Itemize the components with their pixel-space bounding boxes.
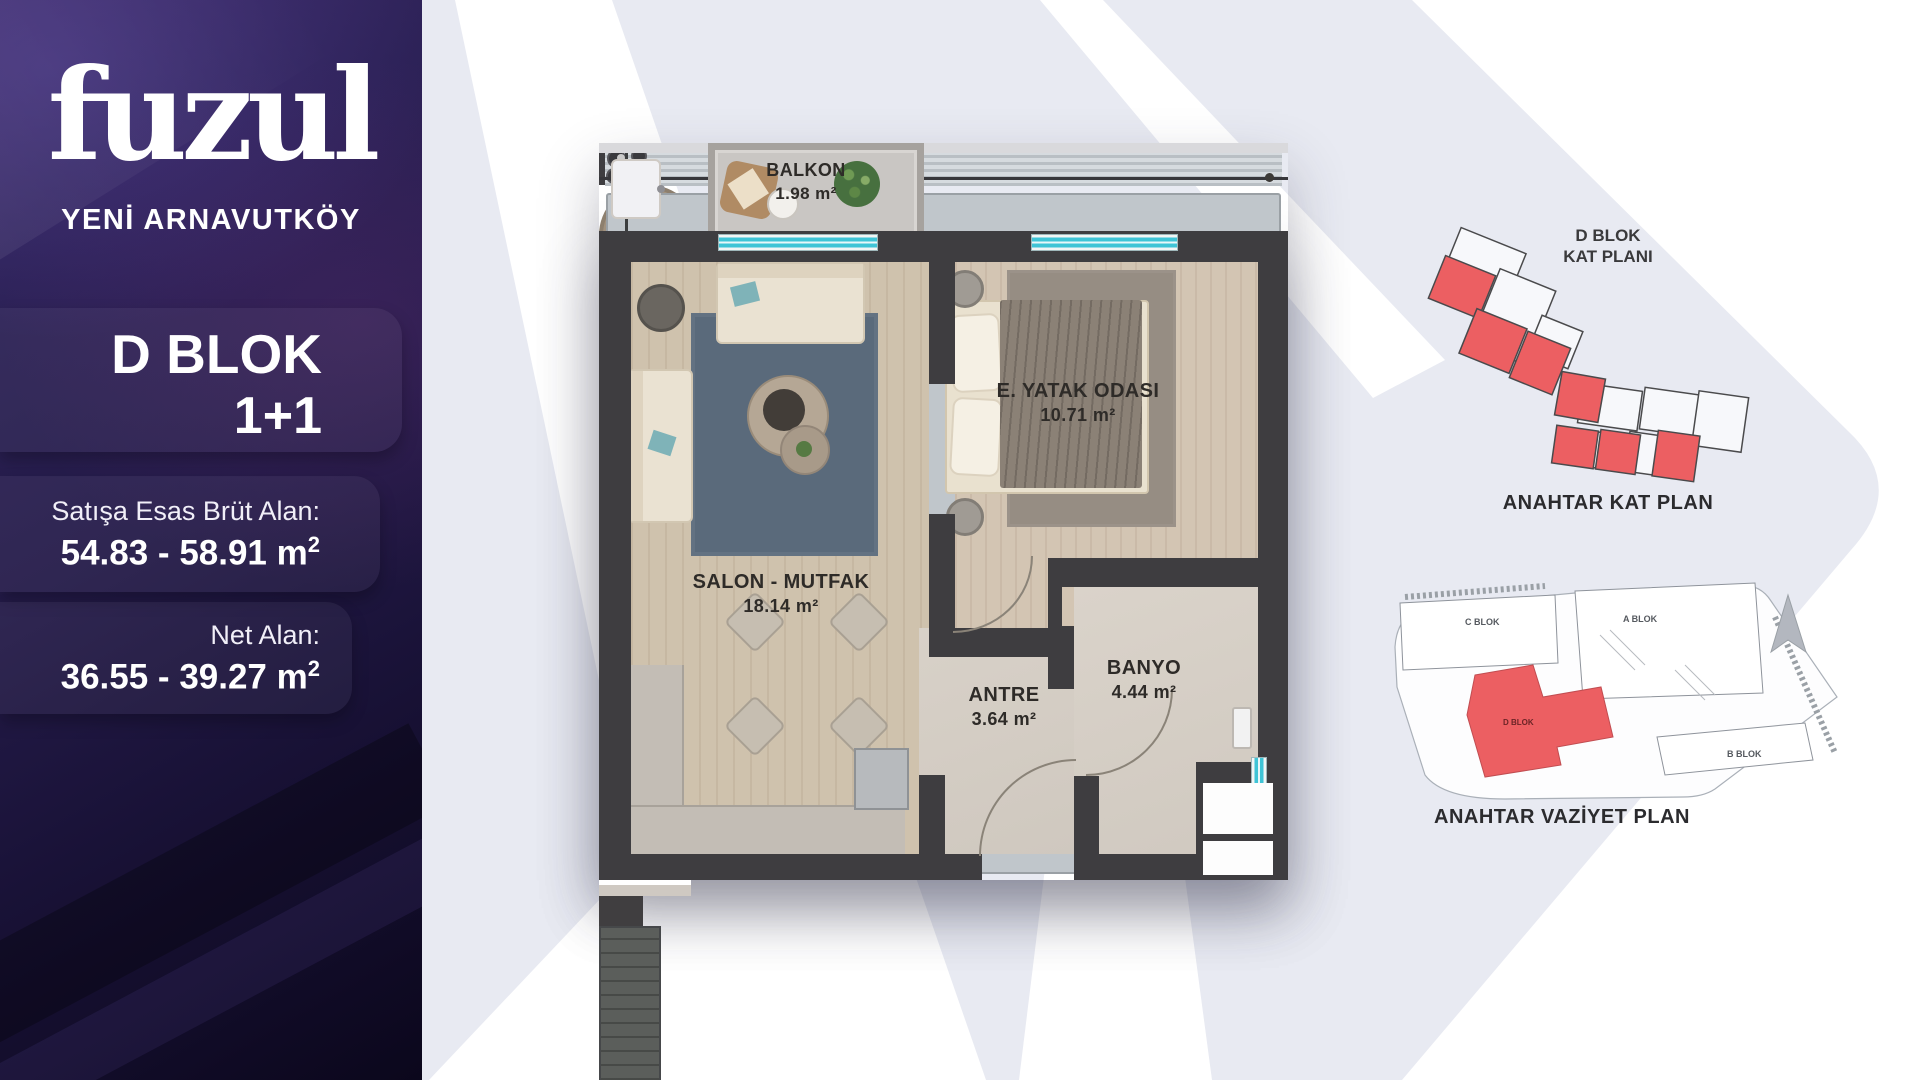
unit-red <box>1652 430 1700 481</box>
net-area-label: Net Alan: <box>210 620 320 651</box>
net-area-number: 36.55 - 39.27 m <box>61 658 308 697</box>
floorplan: BALKON 1.98 m² E. YATAK ODASI 10.71 m² S… <box>599 143 1288 880</box>
banyo-name: BANYO <box>1044 656 1244 680</box>
entry-threshold <box>599 885 691 896</box>
gross-area-value: 54.83 - 58.91 m2 <box>61 532 320 574</box>
d-blok-label: D BLOK <box>1503 718 1534 727</box>
unit-white <box>1639 387 1699 436</box>
flyer-canvas: fuzul YENİ ARNAVUTKÖY D BLOK 1+1 Satışa … <box>0 0 1920 1080</box>
gross-area-sup: 2 <box>308 532 320 557</box>
wall-antre-left <box>919 775 945 854</box>
unit-red <box>1555 372 1606 423</box>
a-blok-outline <box>1575 583 1763 699</box>
unit-red <box>1595 429 1640 474</box>
net-area-sup: 2 <box>308 656 320 681</box>
wall-bottom-right <box>1074 854 1196 880</box>
bathroom-basin <box>611 159 661 219</box>
sidebar: fuzul YENİ ARNAVUTKÖY D BLOK 1+1 Satışa … <box>0 0 422 1080</box>
wall-niche-upper <box>1203 783 1273 834</box>
yatak-area: 10.71 m² <box>948 403 1208 427</box>
room-label-banyo: BANYO 4.44 m² <box>1044 656 1244 704</box>
unit-red <box>1552 425 1599 468</box>
wall-banyo-top <box>1048 558 1288 587</box>
window-banyo <box>1251 757 1267 785</box>
c-blok-label: C BLOK <box>1465 617 1500 627</box>
wall-salon-bedroom-upper <box>929 245 955 384</box>
net-area-value: 36.55 - 39.27 m2 <box>61 656 320 698</box>
yatak-name: E. YATAK ODASI <box>948 379 1208 403</box>
parking-row-top <box>1405 586 1545 597</box>
antre-area: 3.64 m² <box>904 707 1104 731</box>
a-blok-label: A BLOK <box>1623 614 1658 624</box>
vaziyet-plan-caption: ANAHTAR VAZİYET PLAN <box>1432 806 1692 829</box>
room-label-salon: SALON - MUTFAK 18.14 m² <box>661 570 901 618</box>
balkon-name: BALKON <box>706 158 906 182</box>
banyo-area: 4.44 m² <box>1044 680 1244 704</box>
bathroom-faucet <box>657 185 665 193</box>
kat-plan-caption: ANAHTAR KAT PLAN <box>1488 492 1728 515</box>
gross-area-number: 54.83 - 58.91 m <box>61 534 308 573</box>
b-blok-label: B BLOK <box>1727 749 1762 759</box>
block-title: D BLOK <box>111 322 322 386</box>
wall-antre-top <box>929 628 1048 657</box>
window-bedroom <box>1031 234 1178 251</box>
window-balcony <box>718 234 878 251</box>
unit-white <box>1691 391 1748 452</box>
coffee-table-small <box>780 425 830 475</box>
kat-plan-diagram <box>1425 222 1755 494</box>
unit-type: 1+1 <box>234 386 322 446</box>
wall-right <box>1258 231 1288 790</box>
wall-left <box>599 231 631 880</box>
dresser <box>599 896 643 926</box>
wall-banyo-left-thin <box>1048 587 1062 626</box>
vaziyet-plan-diagram: C BLOK A BLOK B BLOK D BLOK <box>1385 575 1840 837</box>
fridge <box>854 748 909 810</box>
wardrobe <box>599 926 661 1080</box>
salon-name: SALON - MUTFAK <box>661 570 901 594</box>
room-label-yatak: E. YATAK ODASI 10.71 m² <box>948 379 1208 427</box>
side-table <box>637 284 685 332</box>
sofa-top <box>716 262 865 344</box>
salon-area: 18.14 m² <box>661 594 901 618</box>
project-name: YENİ ARNAVUTKÖY <box>0 204 422 237</box>
brand-logo: fuzul <box>0 40 422 190</box>
wall-banyo-left-stub <box>1074 776 1099 854</box>
kitchen-counter-left <box>631 665 684 805</box>
gross-area-label: Satışa Esas Brüt Alan: <box>51 496 320 527</box>
c-blok-outline <box>1400 595 1558 670</box>
wall-niche-lower <box>1203 841 1273 875</box>
balkon-area: 1.98 m² <box>706 182 906 206</box>
room-label-balkon: BALKON 1.98 m² <box>706 158 906 206</box>
sofa-left <box>628 369 693 523</box>
kitchen-counter-bottom <box>631 805 905 856</box>
toilet-tank <box>1232 707 1252 749</box>
wall-bottom-left <box>599 854 982 880</box>
